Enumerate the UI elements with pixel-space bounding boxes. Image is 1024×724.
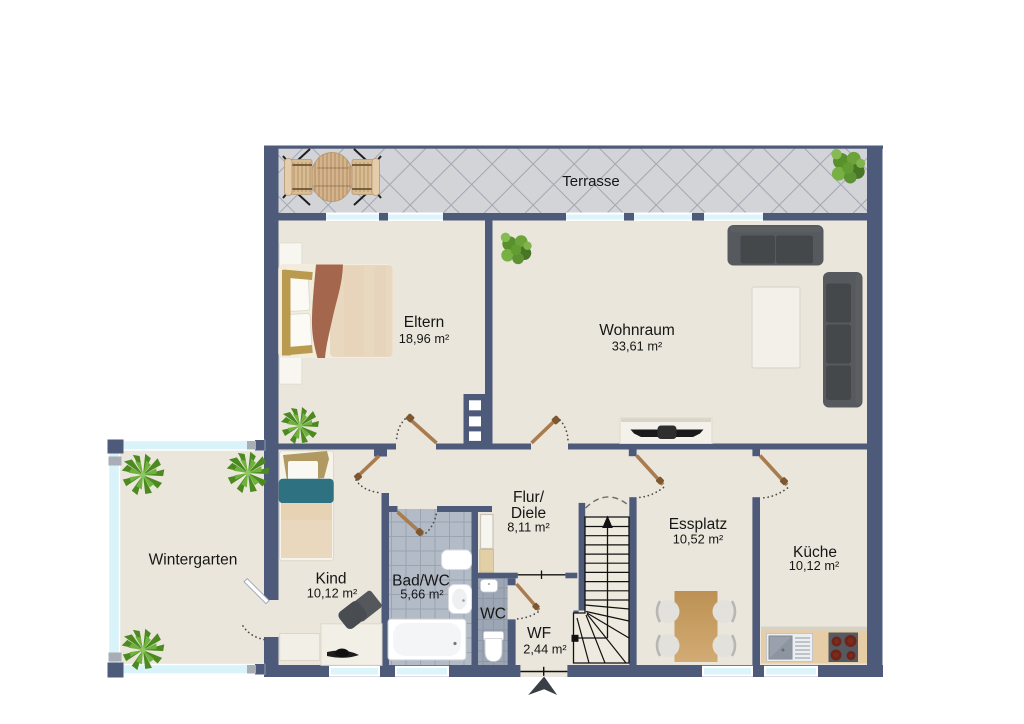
svg-text:8,11 m²: 8,11 m²	[507, 520, 550, 535]
svg-text:WF: WF	[527, 625, 551, 642]
svg-text:33,61 m²: 33,61 m²	[612, 339, 663, 354]
svg-text:WC: WC	[480, 606, 506, 623]
svg-text:10,12 m²: 10,12 m²	[307, 586, 358, 601]
svg-text:Terrasse: Terrasse	[562, 173, 620, 190]
svg-text:Wintergarten: Wintergarten	[149, 552, 238, 569]
svg-text:5,66 m²: 5,66 m²	[400, 587, 444, 602]
svg-text:Flur/: Flur/	[513, 489, 545, 506]
svg-text:10,12 m²: 10,12 m²	[789, 558, 840, 573]
svg-text:Essplatz: Essplatz	[669, 516, 728, 533]
svg-text:Eltern: Eltern	[404, 314, 445, 331]
svg-text:18,96 m²: 18,96 m²	[399, 331, 450, 346]
svg-text:10,52 m²: 10,52 m²	[673, 532, 724, 547]
svg-text:2,44 m²: 2,44 m²	[523, 642, 567, 657]
svg-text:Wohnraum: Wohnraum	[599, 322, 675, 339]
